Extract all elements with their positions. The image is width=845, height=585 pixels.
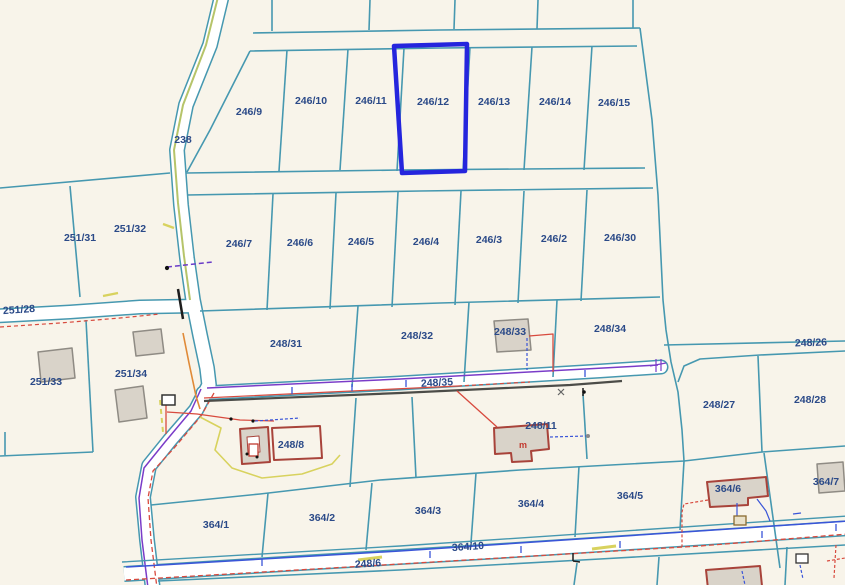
parcel-label-246-12: 246/12: [417, 96, 449, 108]
parcel-label-246-10: 246/10: [295, 95, 327, 107]
cadastral-map[interactable]: 238246/9246/10246/11246/12246/13246/1424…: [0, 0, 845, 585]
parcel-label-248-27: 248/27: [703, 399, 735, 411]
parcel-label-364-1: 364/1: [203, 519, 229, 531]
parcel-label-248-35: 248/35: [421, 376, 454, 390]
parcel-label-246-14: 246/14: [539, 96, 571, 108]
parcel-label-246-13: 246/13: [478, 96, 510, 108]
utility-box-icon-small: [796, 554, 808, 563]
parcel-label-364-10: 364/10: [452, 540, 485, 554]
parcel-label-251-28: 251/28: [3, 303, 36, 317]
parcel-label-364-7: 364/7: [813, 476, 839, 488]
parcel-label-246-7: 246/7: [226, 238, 252, 250]
building-251-34-south: [115, 386, 147, 422]
parcel-label-246-6: 246/6: [287, 237, 313, 249]
parcel-label-251-31: 251/31: [64, 232, 96, 244]
black-dot-248-8-b: [251, 419, 254, 422]
parcel-label-246-30: 246/30: [604, 232, 636, 244]
parcel-label-246-11: 246/11: [355, 95, 387, 107]
parcel-label-248-6: 248/6: [354, 557, 381, 571]
black-dot-248-8-a: [229, 417, 232, 420]
parcel-label-248-26: 248/26: [795, 336, 828, 349]
parcel-label-246-15: 246/15: [598, 97, 630, 109]
parcel-label-364-5: 364/5: [617, 490, 643, 502]
black-dot-road: [582, 390, 586, 394]
black-mark-b: [573, 561, 580, 562]
parcel-label-248-34: 248/34: [594, 323, 626, 335]
parcel-label-364-2: 364/2: [309, 512, 335, 524]
parcel-label-246-9: 246/9: [236, 106, 262, 118]
parcel-label-364-4: 364/4: [518, 498, 544, 510]
gray-node-248-11: [586, 434, 590, 438]
black-dot-248-8-d: [256, 456, 259, 459]
parcel-label-364-3: 364/3: [415, 505, 441, 517]
upper-div-2: [369, 0, 370, 30]
parcel-label-246-5: 246/5: [348, 236, 374, 248]
black-dot-crossing: [165, 266, 169, 270]
parcel-label-248-28: 248/28: [794, 394, 826, 406]
black-dot-248-8-c: [246, 453, 249, 456]
upper-div-3: [454, 0, 455, 29]
parcel-label-246-3: 246/3: [476, 234, 502, 246]
red-box-icon: [249, 444, 258, 456]
parcel-label-248-8: 248/8: [278, 439, 304, 451]
parcel-label-248-31: 248/31: [270, 338, 302, 350]
parcel-label-m: m: [519, 440, 527, 450]
parcel-label-246-4: 246/4: [413, 236, 439, 248]
upper-div-4: [537, 0, 538, 29]
tan-box-icon: [734, 516, 746, 525]
parcel-label-246-2: 246/2: [541, 233, 567, 245]
parcel-label-238: 238: [174, 134, 192, 146]
building-bottom-right: [706, 566, 762, 585]
parcel-label-248-32: 248/32: [401, 330, 433, 342]
parcel-label-251-33: 251/33: [30, 376, 62, 388]
parcel-label-248-11: 248/11: [525, 420, 557, 432]
parcel-label-251-32: 251/32: [114, 223, 146, 235]
building-251-34-north: [133, 329, 164, 356]
map-stage: 238246/9246/10246/11246/12246/13246/1424…: [0, 0, 845, 585]
utility-box-icon: [162, 395, 175, 405]
parcel-label-251-34: 251/34: [115, 368, 147, 380]
parcel-label-364-6: 364/6: [715, 483, 741, 495]
parcel-label-248-33: 248/33: [494, 326, 526, 338]
